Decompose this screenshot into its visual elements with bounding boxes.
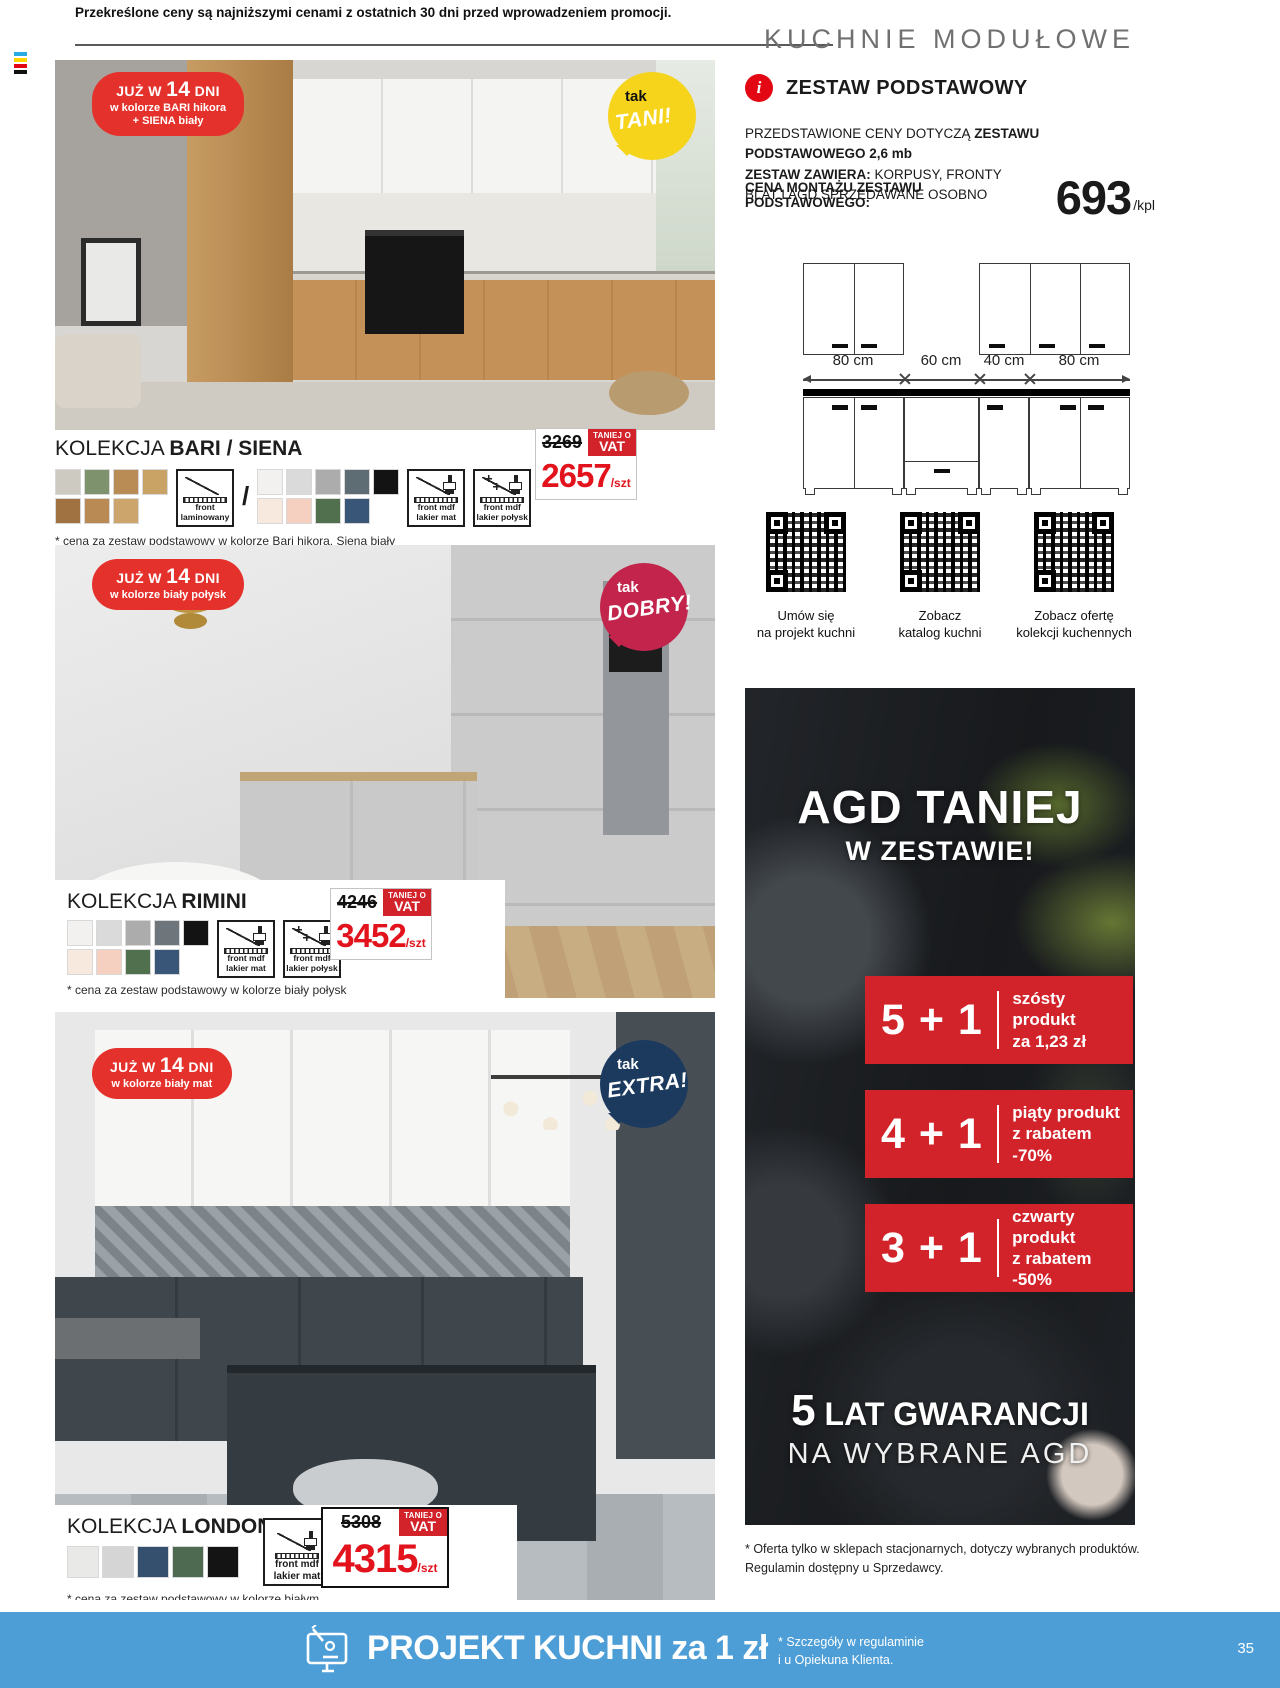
color-swatch bbox=[55, 469, 81, 495]
base-cabinet bbox=[803, 397, 904, 489]
color-swatch bbox=[344, 469, 370, 495]
guarantee-text: 5 LAT GWARANCJI NA WYBRANE AGD bbox=[745, 1386, 1135, 1471]
color-swatch bbox=[344, 498, 370, 524]
collection-panel-rimini: KOLEKCJA RIMINI bbox=[55, 880, 505, 998]
availability-badge: JUŻ W 14 DNI w kolorze biały połysk bbox=[92, 559, 244, 610]
price-box-rimini: 4246 TANIEJ O VAT 3452/szt bbox=[330, 888, 432, 960]
qr-item-katalog: Zobacz katalog kuchni bbox=[879, 508, 1001, 642]
color-swatch bbox=[113, 469, 139, 495]
color-swatch bbox=[142, 469, 168, 495]
kitchen-photo-bari-siena: JUŻ W 14 DNI w kolorze BARI hikora + SIE… bbox=[55, 60, 715, 430]
color-swatch bbox=[125, 920, 151, 946]
assembly-price: CENA MONTAŻU ZESTAWU PODSTAWOWEGO: 693 /… bbox=[745, 178, 1155, 218]
product-london: JUŻ W 14 DNI w kolorze biały mat tak EXT… bbox=[55, 1012, 715, 1600]
front-laminate-icon: front laminowany bbox=[176, 469, 234, 527]
assembly-price-value: 693 bbox=[1056, 178, 1131, 218]
swatch-group-rimini bbox=[67, 920, 209, 975]
promo-bubble-extra: tak EXTRA! bbox=[600, 1040, 688, 1128]
swatch-divider: / bbox=[242, 481, 249, 512]
price-footnote: * cena za zestaw podstawowy w kolorze bi… bbox=[67, 983, 493, 997]
color-swatch bbox=[183, 920, 209, 946]
dimension-label: 80 cm bbox=[813, 352, 893, 369]
swatch-group-london bbox=[67, 1546, 239, 1578]
promo-bubble-dobry: tak DOBRY! bbox=[600, 563, 688, 651]
collection-panel-bari: KOLEKCJA BARI / SIENA bbox=[55, 430, 715, 546]
countertop-bar bbox=[803, 389, 1130, 396]
color-swatch bbox=[315, 469, 341, 495]
color-swatch bbox=[84, 469, 110, 495]
upper-cabinet bbox=[803, 263, 904, 355]
current-price: 2657/szt bbox=[536, 456, 636, 499]
availability-badge: JUŻ W 14 DNI w kolorze biały mat bbox=[92, 1048, 232, 1099]
product-bari-siena: JUŻ W 14 DNI w kolorze BARI hikora + SIE… bbox=[55, 60, 715, 546]
page-edge-marker bbox=[14, 52, 27, 76]
promo-bubble-tani: tak TANI! bbox=[608, 72, 696, 160]
qr-caption: Umów się na projekt kuchni bbox=[745, 608, 867, 642]
upper-cabinet bbox=[979, 263, 1130, 355]
vat-discount-badge: TANIEJ O VAT bbox=[399, 1509, 447, 1536]
front-mdf-mat-icon: front mdf lakier mat bbox=[217, 920, 275, 978]
color-swatch bbox=[172, 1546, 204, 1578]
current-price: 4315/szt bbox=[323, 1536, 447, 1586]
product-rimini: JUŻ W 14 DNI w kolorze biały połysk tak … bbox=[55, 545, 715, 998]
agd-promo-banner: AGD TANIEJ W ZESTAWIE! 5 + 1 szósty prod… bbox=[745, 688, 1135, 1525]
color-swatch bbox=[137, 1546, 169, 1578]
qr-caption: Zobacz ofertę kolekcji kuchennych bbox=[1013, 608, 1135, 642]
swatch-group-siena bbox=[257, 469, 399, 524]
color-swatch bbox=[113, 498, 139, 524]
agd-promo-footnote: * Oferta tylko w sklepach stacjonarnych,… bbox=[745, 1540, 1145, 1578]
front-mdf-mat-icon: front mdf lakier mat bbox=[407, 469, 465, 527]
color-swatch bbox=[154, 949, 180, 975]
agd-promo-title: AGD TANIEJ W ZESTAWIE! bbox=[745, 780, 1135, 867]
qr-links: Umów się na projekt kuchni Zobacz katalo… bbox=[745, 508, 1135, 642]
qr-item-projekt: Umów się na projekt kuchni bbox=[745, 508, 867, 642]
footer-promo-title: PROJEKT KUCHNI za 1 zł bbox=[367, 1629, 768, 1668]
catalog-page: Przekreślone ceny są najniższymi cenami … bbox=[0, 0, 1280, 1688]
price-box-bari: 3269 TANIEJ O VAT 2657/szt bbox=[535, 428, 637, 500]
current-price: 3452/szt bbox=[331, 916, 431, 959]
qr-code-projekt bbox=[762, 508, 850, 596]
color-swatch bbox=[373, 469, 399, 495]
price-disclaimer: Przekreślone ceny są najniższymi cenami … bbox=[75, 5, 671, 20]
appliance-cabinet bbox=[904, 397, 979, 489]
qr-item-oferta: Zobacz ofertę kolekcji kuchennych bbox=[1013, 508, 1135, 642]
dimension-line bbox=[803, 379, 1130, 381]
vat-discount-badge: TANIEJ O VAT bbox=[383, 889, 431, 916]
base-cabinet bbox=[979, 397, 1029, 489]
swatch-group-bari bbox=[55, 469, 168, 524]
collection-panel-london: KOLEKCJA LONDON front mdf lakier mat bbox=[55, 1505, 517, 1600]
qr-caption: Zobacz katalog kuchni bbox=[879, 608, 1001, 642]
offer-4plus1: 4 + 1 piąty produktz rabatem -70% bbox=[865, 1090, 1133, 1178]
color-swatch bbox=[315, 498, 341, 524]
color-swatch bbox=[154, 920, 180, 946]
qr-code-oferta bbox=[1030, 508, 1118, 596]
color-swatch bbox=[96, 920, 122, 946]
availability-badge: JUŻ W 14 DNI w kolorze BARI hikora + SIE… bbox=[92, 72, 244, 136]
kitchen-photo-london: JUŻ W 14 DNI w kolorze biały mat tak EXT… bbox=[55, 1012, 715, 1600]
header-divider bbox=[75, 44, 833, 46]
color-swatch bbox=[286, 498, 312, 524]
kitchen-set-diagram: 80 cm 60 cm 40 cm 80 cm bbox=[745, 238, 1135, 504]
qr-code-katalog bbox=[896, 508, 984, 596]
vat-discount-badge: TANIEJ O VAT bbox=[588, 429, 636, 456]
color-swatch bbox=[67, 920, 93, 946]
dimension-label: 40 cm bbox=[964, 352, 1044, 369]
color-swatch bbox=[55, 498, 81, 524]
old-price: 5308 bbox=[323, 1512, 399, 1533]
color-swatch bbox=[67, 1546, 99, 1578]
price-box-london: 5308 TANIEJ O VAT 4315/szt bbox=[321, 1507, 449, 1588]
front-mdf-gloss-icon: front mdf lakier połysk bbox=[473, 469, 531, 527]
dimension-label: 80 cm bbox=[1039, 352, 1119, 369]
info-icon: i bbox=[745, 74, 773, 102]
color-swatch bbox=[125, 949, 151, 975]
price-footnote: * cena za zestaw podstawowy w kolorze bi… bbox=[67, 1592, 505, 1600]
old-price: 4246 bbox=[331, 892, 383, 913]
color-swatch bbox=[286, 469, 312, 495]
footer-note: * Szczegóły w regulaminie i u Opiekuna K… bbox=[778, 1634, 924, 1669]
offer-5plus1: 5 + 1 szósty produktza 1,23 zł bbox=[865, 976, 1133, 1064]
section-title: KUCHNIE MODUŁOWE bbox=[764, 24, 1135, 55]
color-swatch bbox=[102, 1546, 134, 1578]
zestaw-title: ZESTAW PODSTAWOWY bbox=[786, 77, 1028, 100]
footer-bar: PROJEKT KUCHNI za 1 zł * Szczegóły w reg… bbox=[0, 1612, 1280, 1688]
color-swatch bbox=[96, 949, 122, 975]
zestaw-header: i ZESTAW PODSTAWOWY bbox=[745, 74, 1028, 102]
old-price: 3269 bbox=[536, 432, 588, 453]
kitchen-project-icon bbox=[303, 1625, 351, 1680]
color-swatch bbox=[84, 498, 110, 524]
base-cabinet bbox=[1029, 397, 1130, 489]
color-swatch bbox=[67, 949, 93, 975]
page-number: 35 bbox=[1237, 1640, 1254, 1657]
offer-3plus1: 3 + 1 czwarty produktz rabatem -50% bbox=[865, 1204, 1133, 1292]
color-swatch bbox=[207, 1546, 239, 1578]
color-swatch bbox=[257, 469, 283, 495]
kitchen-photo-rimini: JUŻ W 14 DNI w kolorze biały połysk tak … bbox=[55, 545, 715, 998]
color-swatch bbox=[257, 498, 283, 524]
